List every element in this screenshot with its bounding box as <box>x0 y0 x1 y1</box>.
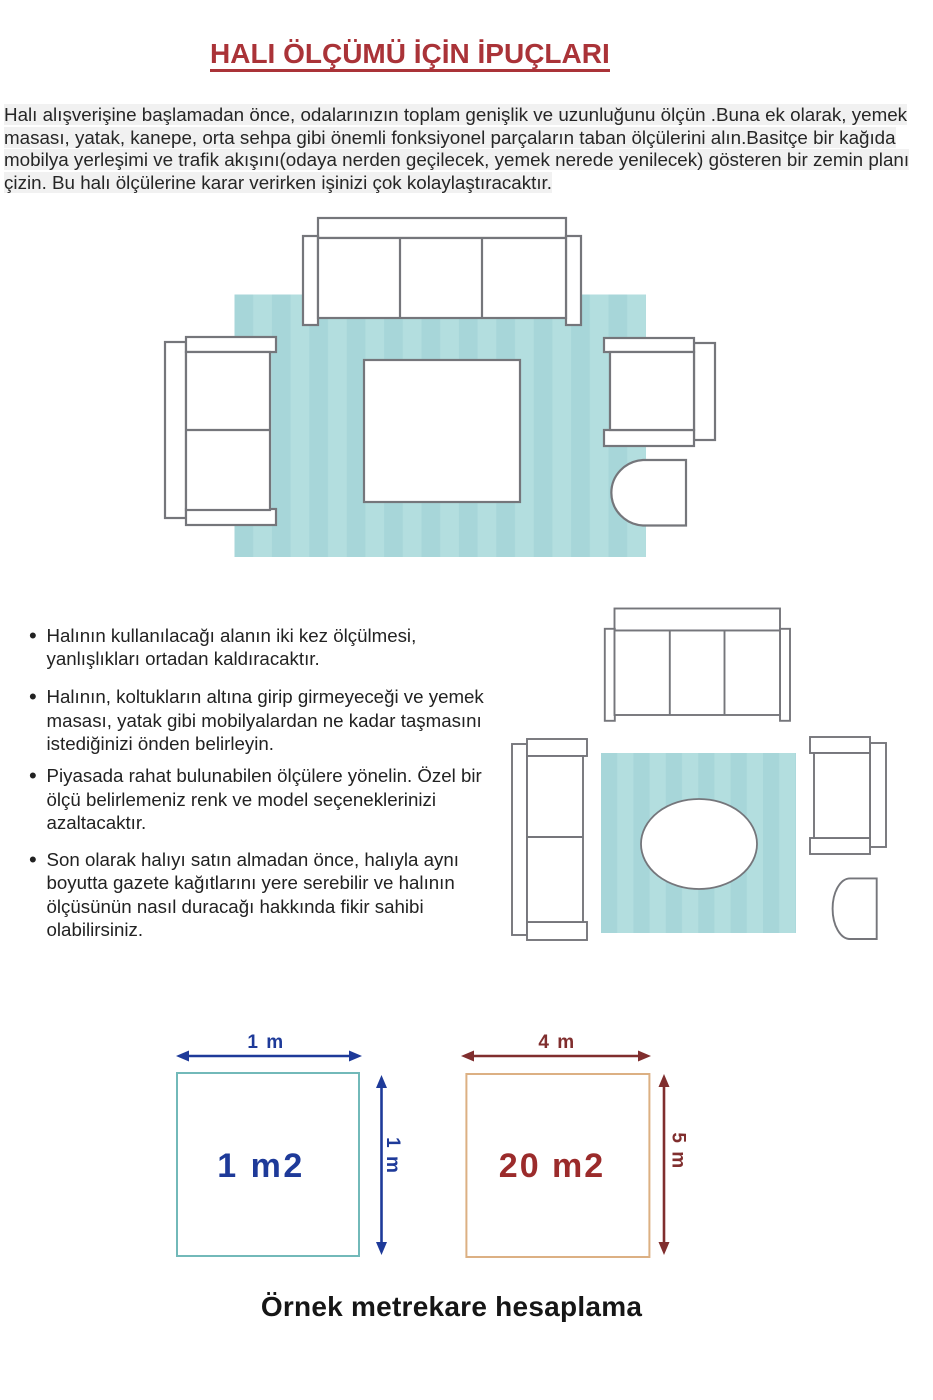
svg-text:Örnek metrekare hesaplama: Örnek metrekare hesaplama <box>261 1291 643 1322</box>
svg-text:5 m: 5 m <box>668 1132 689 1169</box>
svg-text:1 m: 1 m <box>382 1137 403 1174</box>
svg-text:4 m: 4 m <box>538 1032 575 1053</box>
svg-text:1 m: 1 m <box>247 1032 284 1053</box>
svg-text:20 m2: 20 m2 <box>499 1147 605 1185</box>
svg-text:1 m2: 1 m2 <box>217 1147 305 1185</box>
